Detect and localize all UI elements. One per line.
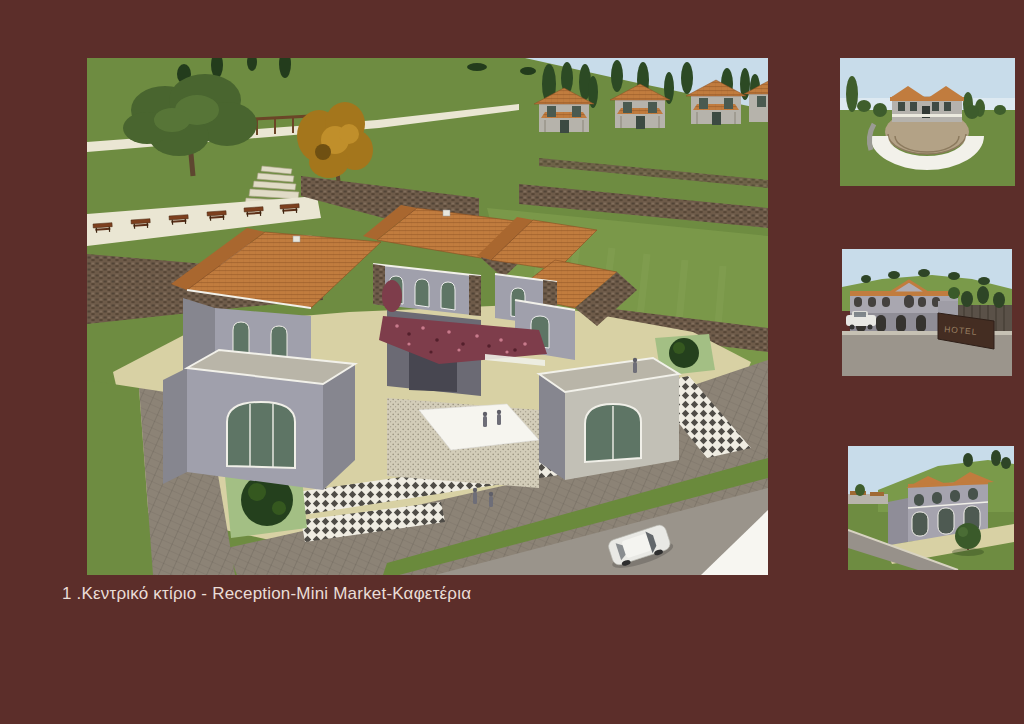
thumb3-scene — [848, 446, 1014, 570]
presentation-slide: { "slide": { "caption": "1 .Κεντρικό κτί… — [0, 0, 1024, 724]
thumbnail-entrance-view[interactable]: HOTEL — [842, 249, 1012, 376]
flat-wing-left — [163, 350, 355, 490]
slide-caption: 1 .Κεντρικό κτίριο - Reception-Mini Mark… — [62, 584, 471, 604]
aerial-scene — [87, 58, 768, 575]
thumb2-scene: HOTEL — [842, 249, 1012, 376]
main-render-image[interactable] — [87, 58, 768, 575]
flat-wing-right — [539, 358, 679, 480]
thumbnail-street-view[interactable] — [848, 446, 1014, 570]
thumb1-scene — [840, 58, 1015, 186]
thumbnail-amphitheatre-view[interactable] — [840, 58, 1015, 186]
